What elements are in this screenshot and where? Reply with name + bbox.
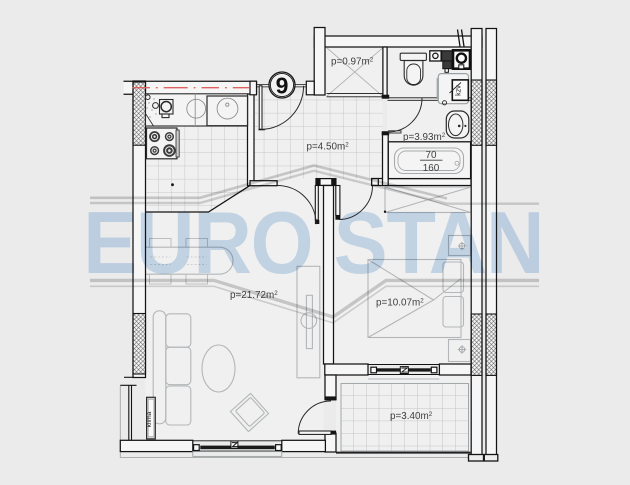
svg-text:kzv: kzv: [454, 85, 463, 96]
svg-text:160: 160: [423, 163, 440, 174]
svg-text:p=3.40m2: p=3.40m2: [390, 411, 433, 422]
svg-text:klima: klima: [146, 411, 153, 427]
svg-text:EURO STAN: EURO STAN: [83, 193, 543, 292]
svg-text:p=10.07m2: p=10.07m2: [376, 297, 424, 308]
svg-text:9: 9: [276, 72, 289, 98]
svg-text:p=4.50m2: p=4.50m2: [307, 142, 350, 153]
svg-text:p=0.97m2: p=0.97m2: [331, 57, 374, 68]
svg-text:p=3.93m2: p=3.93m2: [403, 132, 446, 143]
svg-text:70: 70: [426, 150, 437, 161]
